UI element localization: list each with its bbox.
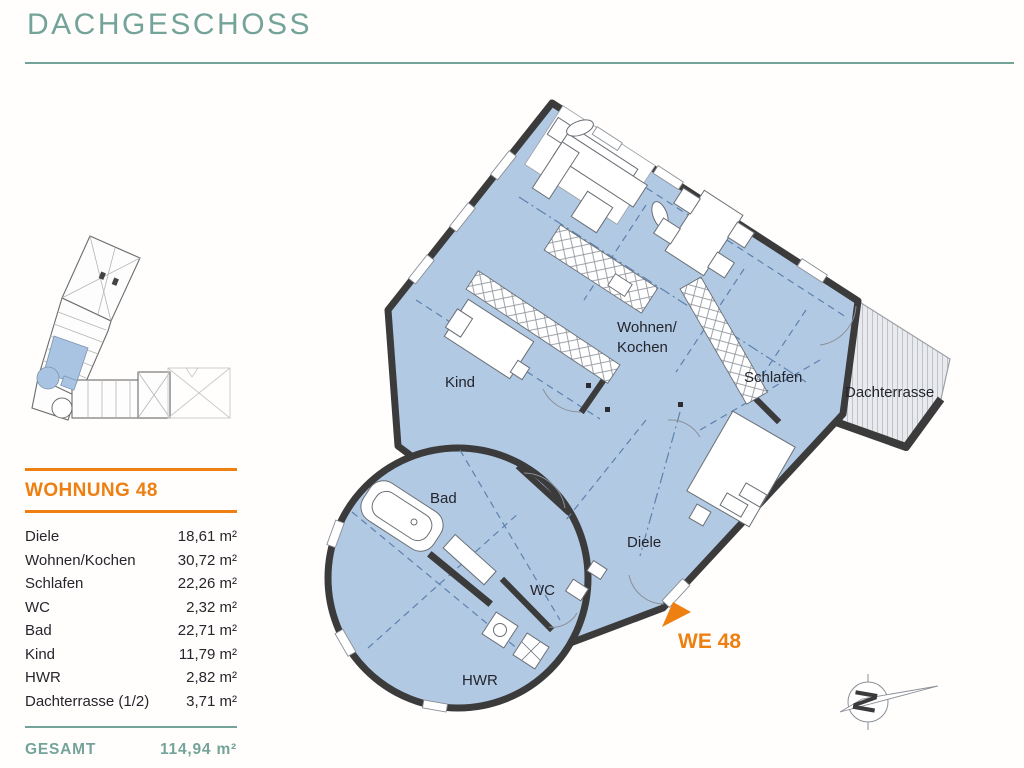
table-row: HWR 2,82 m² xyxy=(25,669,237,693)
apartment-info-panel: WOHNUNG 48 Diele 18,61 m² Wohnen/Kochen … xyxy=(25,468,237,759)
room-name: Kind xyxy=(25,646,55,663)
overview-site-plan xyxy=(18,228,238,473)
room-area: 2,32 m² xyxy=(186,599,237,616)
room-label-diele: Diele xyxy=(627,534,661,551)
table-row: WC 2,32 m² xyxy=(25,599,237,623)
overview-adjacent-building xyxy=(168,368,230,418)
room-area: 22,26 m² xyxy=(178,575,237,592)
room-name: WC xyxy=(25,599,50,616)
table-row: Diele 18,61 m² xyxy=(25,528,237,552)
table-row: Kind 11,79 m² xyxy=(25,646,237,670)
north-compass-icon: N xyxy=(840,674,938,730)
total-area: 114,94 m² xyxy=(160,741,237,759)
room-area: 2,82 m² xyxy=(186,669,237,686)
brochure-page: DACHGESCHOSS xyxy=(0,0,1024,768)
orange-rule-bottom xyxy=(25,510,237,513)
apartment-title: WOHNUNG 48 xyxy=(25,480,237,502)
room-area: 18,61 m² xyxy=(178,528,237,545)
room-name: Schlafen xyxy=(25,575,83,592)
room-area: 11,79 m² xyxy=(179,646,237,663)
title-divider xyxy=(25,62,1014,64)
orange-rule-top xyxy=(25,468,237,471)
total-row: GESAMT 114,94 m² xyxy=(25,741,237,759)
room-label-bad: Bad xyxy=(430,490,457,507)
room-name: Diele xyxy=(25,528,59,545)
room-label-schlafen: Schlafen xyxy=(744,369,802,386)
room-name: Bad xyxy=(25,622,52,639)
room-area: 3,71 m² xyxy=(186,693,237,710)
room-label-wc: WC xyxy=(530,582,555,599)
room-name: Wohnen/Kochen xyxy=(25,552,136,569)
unit-marker-label: WE 48 xyxy=(678,630,741,653)
overview-stair-tower xyxy=(52,398,72,418)
room-area-table: Diele 18,61 m² Wohnen/Kochen 30,72 m² Sc… xyxy=(25,528,237,716)
room-name: HWR xyxy=(25,669,61,686)
table-row: Schlafen 22,26 m² xyxy=(25,575,237,599)
room-name: Dachterrasse (1/2) xyxy=(25,693,149,710)
room-area: 30,72 m² xyxy=(178,552,237,569)
room-label-kochen: Kochen xyxy=(617,339,668,356)
room-label-kind: Kind xyxy=(445,374,475,391)
teal-rule xyxy=(25,726,237,728)
room-area: 22,71 m² xyxy=(178,622,237,639)
room-label-wohnen: Wohnen/ xyxy=(617,319,678,336)
table-row: Bad 22,71 m² xyxy=(25,622,237,646)
page-title: DACHGESCHOSS xyxy=(27,8,312,42)
room-label-hwr: HWR xyxy=(462,672,498,689)
total-label: GESAMT xyxy=(25,741,96,759)
room-label-dachterrasse: Dachterrasse xyxy=(845,384,934,401)
floorplan: Wohnen/ Kochen Schlafen Dachterrasse Kin… xyxy=(300,78,1024,746)
table-row: Wohnen/Kochen 30,72 m² xyxy=(25,552,237,576)
table-row: Dachterrasse (1/2) 3,71 m² xyxy=(25,693,237,717)
